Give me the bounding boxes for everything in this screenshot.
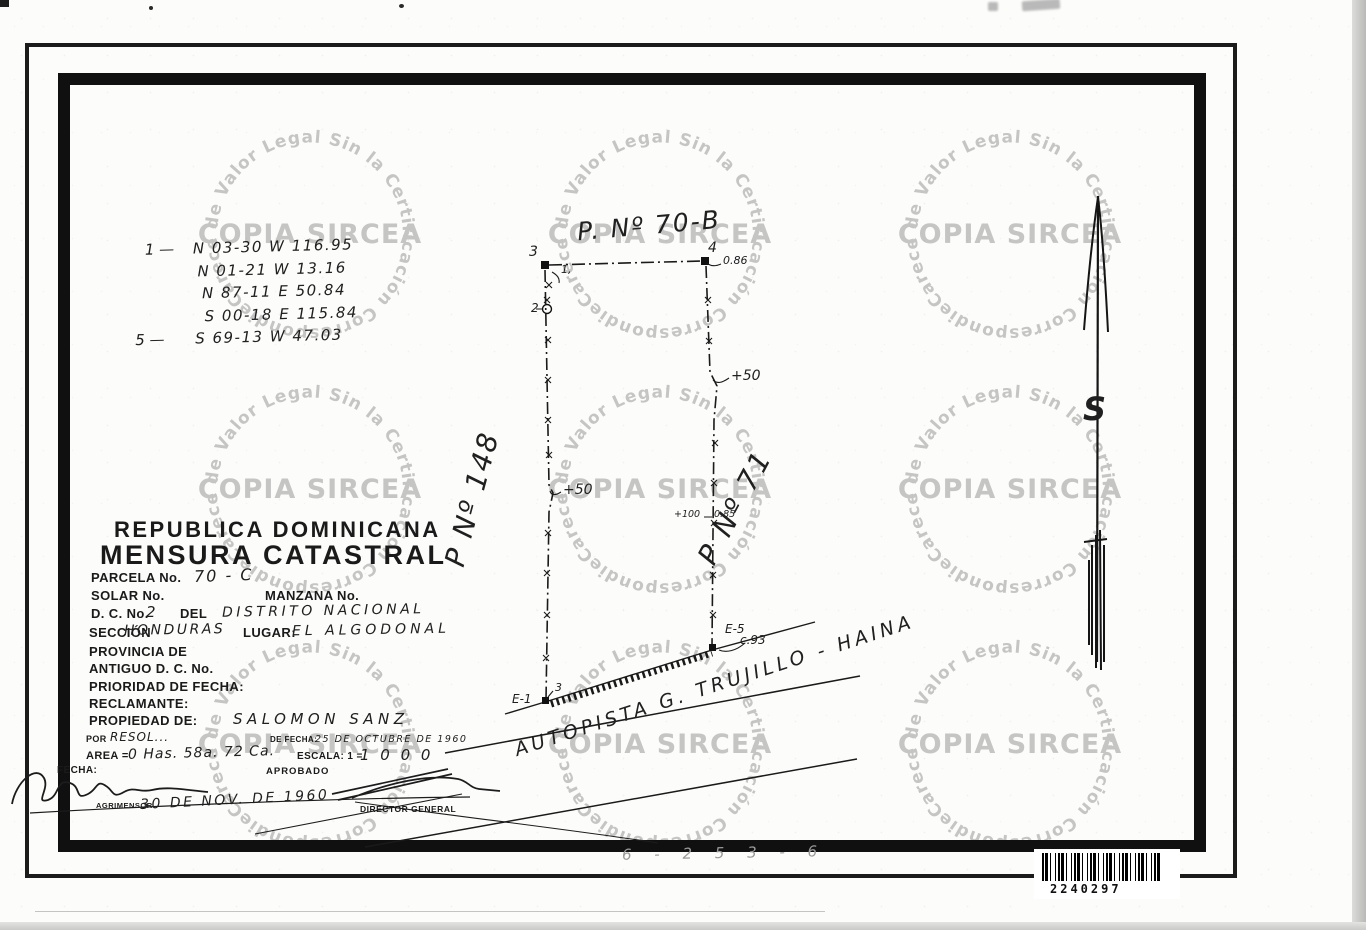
point-3-label: 3 <box>529 244 538 260</box>
provincia-label: PROVINCIA DE <box>89 644 187 659</box>
scan-artifact-line <box>35 911 825 912</box>
barcode-bars <box>1042 853 1162 881</box>
bearing-prefix <box>149 260 198 284</box>
road-lower-edge <box>365 759 857 847</box>
area-label: AREA = <box>86 750 129 762</box>
propiedad-label: PROPIEDAD DE: <box>89 713 198 728</box>
de-fecha-label: DE FECHA: <box>270 735 317 744</box>
scan-smudge <box>988 2 998 11</box>
propiedad-value: SALOMON SANZ <box>233 710 409 728</box>
point-1-note: 1, <box>561 263 572 276</box>
pencil-code: 6 - 2 5 3 - 6 <box>622 842 826 864</box>
del-label: DEL <box>180 606 207 621</box>
survey-drawing <box>0 0 1366 930</box>
parcel-left-boundary <box>545 270 553 700</box>
monument-point-2 <box>543 305 552 314</box>
lugar-label: LUGAR: <box>243 625 296 640</box>
de-fecha-value: 25 DE OCTUBRE DE 1960 <box>315 734 467 745</box>
bearing-text: S 69-13 W 47.03 <box>195 324 343 350</box>
lugar-value: EL ALGODONAL <box>292 621 450 640</box>
seccion-value: HONDURAS <box>124 621 226 639</box>
escala-label: ESCALA: 1 = <box>297 751 363 762</box>
bearings-list: 1 — N 03-30 W 116.95 N 01-21 W 13.16 N 8… <box>145 233 359 351</box>
offset-085: 0.85 <box>714 509 735 520</box>
director-general-label: DIRECTOR GENERAL <box>360 804 456 814</box>
station-e1-label: E-1 <box>512 692 532 706</box>
monument-point-e5 <box>709 644 716 651</box>
por-value: RESOL... <box>110 730 169 744</box>
offset-plus50-right: +50 <box>731 368 761 384</box>
barcode-number: 2240297 <box>1050 882 1122 896</box>
scan-speck <box>399 4 404 8</box>
dc-value: 2 <box>146 603 156 621</box>
station-ticks <box>543 282 718 661</box>
manzana-label: MANZANA No. <box>265 588 359 603</box>
offset-086: 0.86 <box>723 254 748 267</box>
antiguo-dc-label: ANTIGUO D. C. No. <box>89 661 214 676</box>
document-title: MENSURA CATASTRAL <box>100 540 446 571</box>
solar-label: SOLAR No. <box>91 588 165 603</box>
offset-plus50-left: +50 <box>563 482 593 498</box>
scan-speck <box>149 6 153 10</box>
north-arrow <box>1084 196 1108 670</box>
bearing-prefix <box>156 305 205 329</box>
parcela-value: 70 - C <box>194 565 254 586</box>
bearing-prefix <box>154 282 203 306</box>
north-arrow-letter: S <box>1083 390 1106 428</box>
reclamante-label: RECLAMANTE: <box>89 696 189 711</box>
scan-edge-bottom <box>0 922 1366 930</box>
monument-point-e1 <box>542 697 549 704</box>
aprobado-label: APROBADO <box>266 766 329 777</box>
escala-value: 1 0 0 0 <box>360 746 433 764</box>
fecha-label: FECHA: <box>57 765 97 776</box>
parcel-right-boundary <box>706 266 717 646</box>
point-2-label: 2 <box>531 301 539 315</box>
offset-c93: c.93 <box>740 633 766 647</box>
por-label: POR <box>86 734 107 744</box>
point-4-label: 4 <box>708 240 717 256</box>
parcel-top-boundary <box>549 261 702 265</box>
bearing-prefix: 1 — <box>145 238 194 262</box>
parcela-label: PARCELA No. <box>91 570 181 585</box>
e1-point-label: 3 <box>555 681 562 694</box>
bearing-prefix: 5 — <box>135 327 196 351</box>
dc-label: D. C. No. <box>91 606 149 621</box>
prioridad-label: PRIORIDAD DE FECHA: <box>89 679 244 694</box>
barcode-sticker: 2240297 <box>1034 849 1180 899</box>
scan-speck <box>0 0 9 7</box>
monument-point-3 <box>541 261 549 269</box>
offset-plus100: +100 <box>674 509 700 520</box>
scan-edge-right <box>1352 0 1366 930</box>
scanned-cadastral-document: Carece de Valor Legal Sin la Certificaci… <box>0 0 1366 930</box>
